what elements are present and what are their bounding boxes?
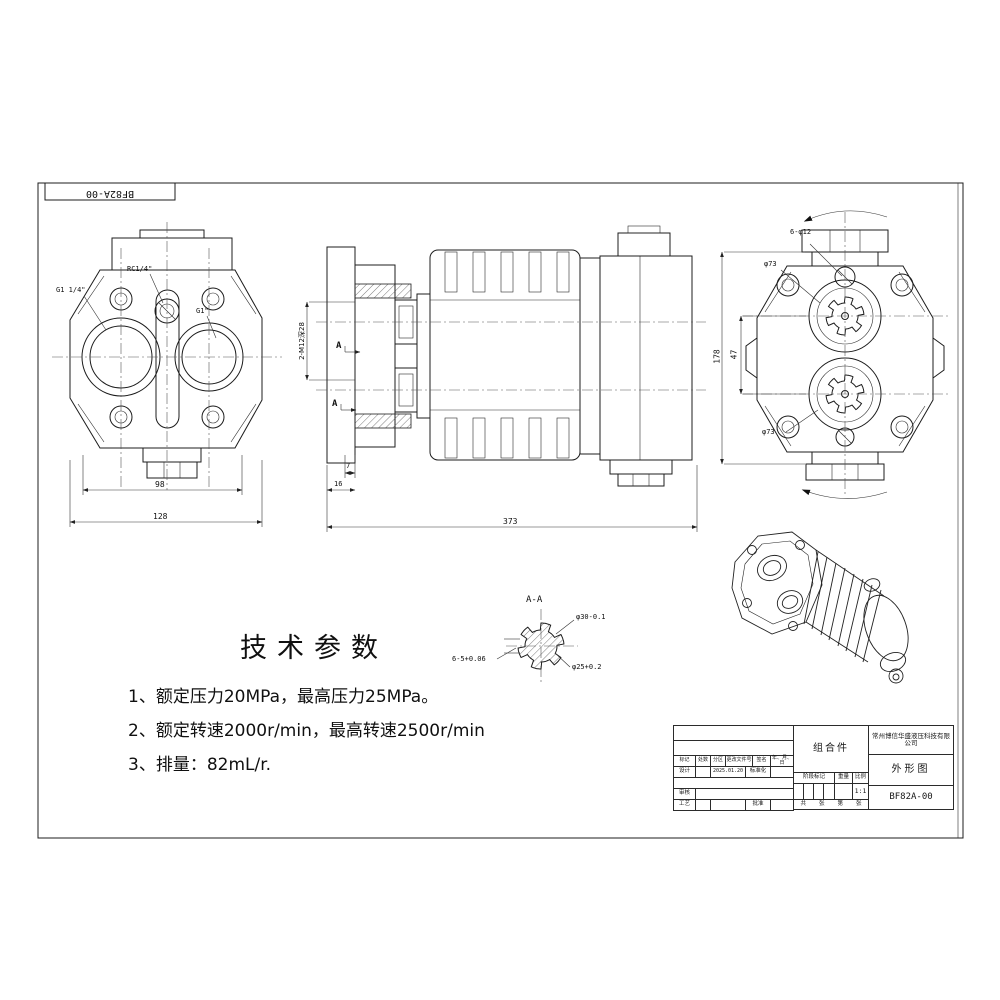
tech-param-1: 1、额定压力20MPa，最高压力25MPa。 bbox=[128, 682, 438, 707]
front-port-left-label: G1 1/4" bbox=[56, 286, 86, 294]
side-dim-373: 373 bbox=[503, 517, 517, 526]
drawing-linework bbox=[0, 0, 1000, 1000]
revision-row-2 bbox=[673, 740, 794, 756]
drawing-sheet: BF82A-00 G1 1/4" RC1/4" G1" 98 128 2-M12… bbox=[0, 0, 1000, 1000]
drawing-number: BF82A-00 bbox=[868, 785, 954, 810]
part-name: 组合件 bbox=[793, 725, 869, 773]
rear-dim-height: 178 bbox=[713, 342, 722, 372]
side-dim-7: 7 bbox=[346, 462, 350, 470]
side-section-mark-bottom: A bbox=[332, 399, 337, 409]
side-dim-ports: 2-M12深28 bbox=[297, 309, 307, 373]
company-name: 常州博信华盛液压科技有限公司 bbox=[868, 725, 954, 755]
rear-dim-centers: 47 bbox=[730, 343, 739, 367]
tech-params-title: 技术参数 bbox=[240, 626, 388, 665]
section-dia-minor: φ25+0.2 bbox=[572, 663, 602, 671]
weight-value bbox=[834, 783, 853, 800]
isometric-view bbox=[732, 532, 916, 683]
corner-drawing-number: BF82A-00 bbox=[45, 184, 175, 199]
process-blank-1 bbox=[695, 799, 711, 811]
sheet-count-row: 共 张 第 张 bbox=[793, 799, 869, 810]
section-dia-major: φ30-0.1 bbox=[576, 613, 606, 621]
tech-param-2: 2、额定转速2000r/min，最高转速2500r/min bbox=[128, 716, 485, 741]
revision-row-1 bbox=[673, 725, 794, 741]
approve-label: 批准 bbox=[745, 799, 771, 811]
sheet-total-label: 共 bbox=[800, 802, 806, 808]
sheet-zhang2-label: 张 bbox=[856, 802, 862, 808]
front-port-center-label: RC1/4" bbox=[127, 265, 152, 273]
rear-dia-bottom: φ73 bbox=[762, 428, 775, 436]
sheet-name: 外形图 bbox=[868, 754, 954, 786]
side-section-mark-top: A bbox=[336, 341, 341, 351]
rear-view bbox=[722, 211, 948, 499]
side-dim-16: 16 bbox=[334, 480, 342, 488]
front-dim-128: 128 bbox=[153, 512, 167, 521]
front-dim-98: 98 bbox=[155, 480, 165, 489]
scale-value: 1:1 bbox=[852, 783, 869, 800]
section-spline-width: 6-5+0.06 bbox=[452, 655, 486, 663]
section-aa-view bbox=[497, 609, 578, 683]
rear-dia-top: φ73 bbox=[764, 260, 777, 268]
process-label: 工艺 bbox=[673, 799, 696, 811]
tech-param-3: 3、排量：82mL/r. bbox=[128, 750, 271, 775]
section-title: A-A bbox=[526, 595, 542, 605]
approve-blank bbox=[770, 799, 794, 811]
side-view bbox=[307, 226, 706, 532]
process-blank-2 bbox=[710, 799, 746, 811]
front-view bbox=[52, 222, 282, 527]
sheet-no-label: 第 bbox=[837, 802, 843, 808]
rear-bolt-callout: 6-φ12 bbox=[790, 228, 811, 236]
sheet-zhang-label: 张 bbox=[819, 802, 825, 808]
front-port-right-label: G1" bbox=[196, 307, 209, 315]
